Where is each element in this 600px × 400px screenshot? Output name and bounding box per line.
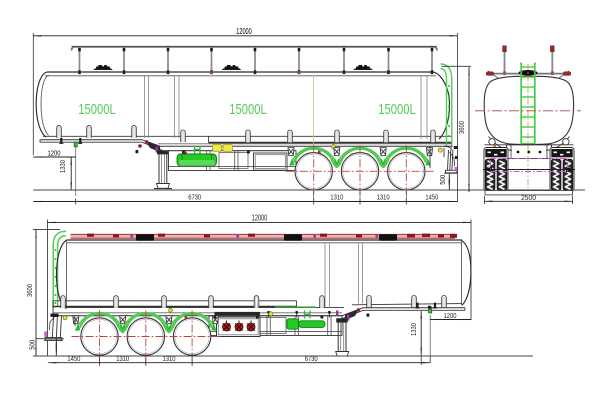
svg-text:500: 500 xyxy=(440,175,447,185)
svg-text:15000L: 15000L xyxy=(229,101,267,118)
svg-text:500: 500 xyxy=(30,340,37,350)
svg-text:6730: 6730 xyxy=(305,354,318,363)
svg-text:1200: 1200 xyxy=(444,311,457,320)
svg-text:3600: 3600 xyxy=(457,121,466,134)
svg-text:12000: 12000 xyxy=(236,27,252,36)
svg-text:1450: 1450 xyxy=(67,354,80,363)
svg-text:1330: 1330 xyxy=(58,160,67,173)
svg-text:12000: 12000 xyxy=(252,214,268,223)
svg-text:1450: 1450 xyxy=(425,193,438,202)
svg-text:1200: 1200 xyxy=(48,148,61,157)
svg-text:2500: 2500 xyxy=(521,193,536,202)
svg-text:1310: 1310 xyxy=(330,193,343,202)
svg-text:6730: 6730 xyxy=(188,193,201,202)
svg-text:1310: 1310 xyxy=(116,354,129,363)
svg-text:1310: 1310 xyxy=(377,193,390,202)
svg-text:1310: 1310 xyxy=(163,354,176,363)
svg-text:15000L: 15000L xyxy=(78,101,116,118)
svg-text:15000L: 15000L xyxy=(378,101,416,118)
svg-text:1330: 1330 xyxy=(409,323,418,336)
svg-text:3600: 3600 xyxy=(25,284,34,297)
